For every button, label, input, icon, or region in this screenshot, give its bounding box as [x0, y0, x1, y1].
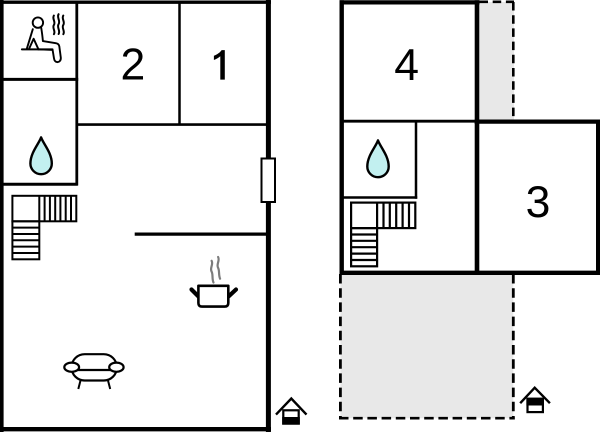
- svg-text:2: 2: [121, 41, 146, 90]
- svg-text:3: 3: [526, 178, 551, 227]
- svg-text:4: 4: [394, 41, 419, 90]
